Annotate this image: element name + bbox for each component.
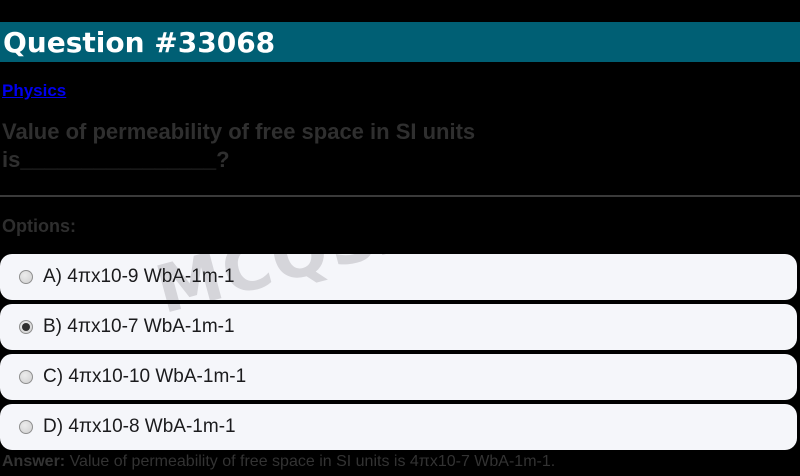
divider (0, 195, 800, 197)
options-list: A) 4πx10-9 WbA-1m-1 B) 4πx10-7 WbA-1m-1 … (0, 254, 797, 454)
option-label-c: C) 4πx10-10 WbA-1m-1 (43, 366, 246, 388)
answer-line: Answer: Value of permeability of free sp… (2, 453, 782, 471)
option-card-d[interactable]: D) 4πx10-8 WbA-1m-1 (0, 404, 797, 450)
option-card-a[interactable]: A) 4πx10-9 WbA-1m-1 (0, 254, 797, 300)
option-radio-d[interactable] (19, 420, 33, 434)
answer-text: Value of permeability of free space in S… (65, 453, 555, 470)
question-line-2: is________________? (2, 146, 642, 174)
option-label-b: B) 4πx10-7 WbA-1m-1 (43, 316, 235, 338)
option-card-b[interactable]: B) 4πx10-7 WbA-1m-1 (0, 304, 797, 350)
header-bar: Question #33068 (0, 22, 800, 62)
option-radio-c[interactable] (19, 370, 33, 384)
option-radio-a[interactable] (19, 270, 33, 284)
category-link-physics[interactable]: Physics (2, 81, 66, 101)
question-text: Value of permeability of free space in S… (2, 118, 642, 174)
option-label-a: A) 4πx10-9 WbA-1m-1 (43, 266, 235, 288)
answer-label: Answer: (2, 453, 65, 470)
option-radio-b[interactable] (19, 320, 33, 334)
option-label-d: D) 4πx10-8 WbA-1m-1 (43, 416, 236, 438)
options-label: Options: (2, 216, 76, 237)
question-line-1: Value of permeability of free space in S… (2, 118, 642, 146)
option-card-c[interactable]: C) 4πx10-10 WbA-1m-1 (0, 354, 797, 400)
page-title: Question #33068 (0, 26, 275, 59)
